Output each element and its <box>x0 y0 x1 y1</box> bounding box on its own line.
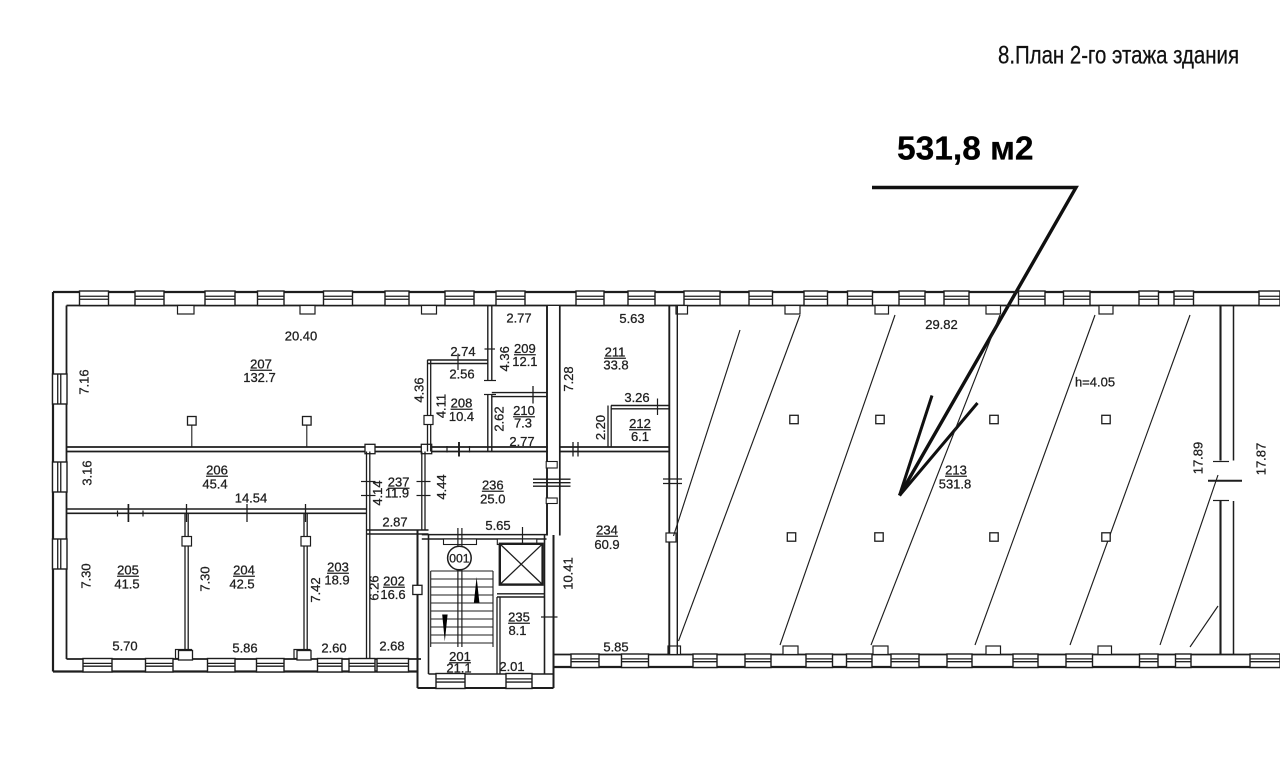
svg-text:206: 206 <box>206 462 228 477</box>
svg-text:2.20: 2.20 <box>593 415 608 440</box>
svg-text:7.3: 7.3 <box>514 415 532 430</box>
svg-text:60.9: 60.9 <box>594 537 619 552</box>
svg-text:205: 205 <box>117 562 139 577</box>
svg-text:25.0: 25.0 <box>480 491 505 506</box>
svg-text:20.40: 20.40 <box>285 328 318 343</box>
svg-text:5.85: 5.85 <box>603 639 628 654</box>
svg-text:29.82: 29.82 <box>925 317 958 332</box>
svg-text:531.8: 531.8 <box>939 476 972 491</box>
svg-text:12.1: 12.1 <box>512 354 537 369</box>
svg-text:001: 001 <box>449 552 470 566</box>
svg-text:45.4: 45.4 <box>202 476 227 491</box>
svg-text:14.54: 14.54 <box>235 490 268 505</box>
svg-text:5.86: 5.86 <box>232 640 257 655</box>
svg-text:17.87: 17.87 <box>1253 443 1268 476</box>
svg-text:16.6: 16.6 <box>380 587 405 602</box>
svg-text:132.7: 132.7 <box>243 370 276 385</box>
svg-text:5.63: 5.63 <box>619 311 644 326</box>
svg-text:2.87: 2.87 <box>382 514 407 529</box>
svg-text:7.30: 7.30 <box>78 563 93 588</box>
svg-text:10.41: 10.41 <box>560 557 575 590</box>
svg-text:7.30: 7.30 <box>197 566 212 591</box>
svg-text:2.62: 2.62 <box>491 406 506 431</box>
svg-text:5.65: 5.65 <box>485 518 510 533</box>
svg-text:7.42: 7.42 <box>308 577 323 602</box>
svg-text:531,8 м2: 531,8 м2 <box>897 131 1034 168</box>
svg-text:7.16: 7.16 <box>76 369 91 394</box>
svg-text:3.26: 3.26 <box>624 390 649 405</box>
svg-text:6.26: 6.26 <box>366 575 381 600</box>
svg-text:2.60: 2.60 <box>321 640 346 655</box>
svg-text:6.1: 6.1 <box>631 429 649 444</box>
svg-text:204: 204 <box>233 562 255 577</box>
svg-text:h=4.05: h=4.05 <box>1075 374 1115 389</box>
svg-text:234: 234 <box>596 522 618 537</box>
svg-text:3.16: 3.16 <box>79 460 94 485</box>
svg-text:33.8: 33.8 <box>603 357 628 372</box>
svg-text:5.70: 5.70 <box>112 638 137 653</box>
svg-text:4.36: 4.36 <box>497 346 512 371</box>
svg-text:42.5: 42.5 <box>229 576 254 591</box>
svg-text:4.44: 4.44 <box>434 474 449 499</box>
svg-text:2.68: 2.68 <box>379 638 404 653</box>
svg-text:2.77: 2.77 <box>506 310 531 325</box>
svg-text:17.89: 17.89 <box>1190 442 1205 475</box>
svg-text:4.14: 4.14 <box>370 480 385 505</box>
svg-text:18.9: 18.9 <box>324 572 349 587</box>
svg-text:2.56: 2.56 <box>449 366 474 381</box>
svg-text:8.1: 8.1 <box>508 623 526 638</box>
svg-text:11.9: 11.9 <box>385 485 409 500</box>
svg-text:4.11: 4.11 <box>433 394 448 418</box>
svg-text:10.4: 10.4 <box>449 409 474 424</box>
svg-text:2.74: 2.74 <box>450 344 475 359</box>
svg-text:2.01: 2.01 <box>499 659 524 674</box>
svg-text:4.36: 4.36 <box>411 377 426 402</box>
svg-text:2.77: 2.77 <box>509 434 534 449</box>
svg-text:8.План 2-го этажа здания: 8.План 2-го этажа здания <box>998 42 1239 70</box>
svg-text:213: 213 <box>945 462 967 477</box>
svg-text:41.5: 41.5 <box>114 576 139 591</box>
svg-text:236: 236 <box>482 477 504 492</box>
svg-text:21.1: 21.1 <box>446 660 471 675</box>
svg-text:7.28: 7.28 <box>561 366 576 391</box>
